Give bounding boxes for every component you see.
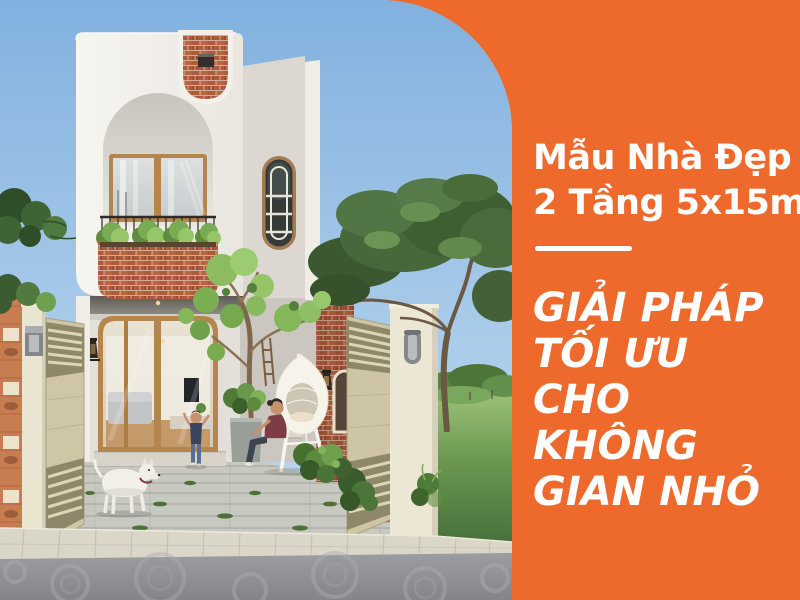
panel-heading: GIẢI PHÁP TỐI ƯU CHO KHÔNG GIAN NHỎ (533, 285, 764, 515)
cylinder-lamp-icon (404, 330, 421, 364)
arch-window (103, 93, 213, 226)
divider-line (535, 246, 632, 251)
panel-title-line2: 2 Tầng 5x15m (533, 181, 800, 226)
promo-banner: Mẫu Nhà Đẹp 2 Tầng 5x15m GIẢI PHÁP TỐI Ư… (0, 0, 800, 600)
street (0, 553, 512, 600)
right-pillar (389, 304, 439, 546)
house-photo (0, 0, 512, 600)
heading-line: CHO (533, 377, 764, 423)
house-scene-illustration (0, 0, 512, 600)
heading-line: TỐI ƯU (533, 331, 764, 377)
left-pillar (21, 302, 47, 545)
pill-window (262, 156, 296, 250)
heading-line: KHÔNG (533, 423, 764, 469)
panel-title: Mẫu Nhà Đẹp 2 Tầng 5x15m (533, 136, 800, 226)
heading-line: GIẢI PHÁP (533, 285, 764, 331)
wall-lamp-icon (25, 326, 43, 356)
left-gate (46, 318, 84, 546)
breeze-block-wall (0, 288, 22, 540)
chimney (178, 30, 233, 104)
panel-title-line1: Mẫu Nhà Đẹp (533, 136, 800, 181)
heading-line: GIAN NHỎ (533, 469, 764, 515)
